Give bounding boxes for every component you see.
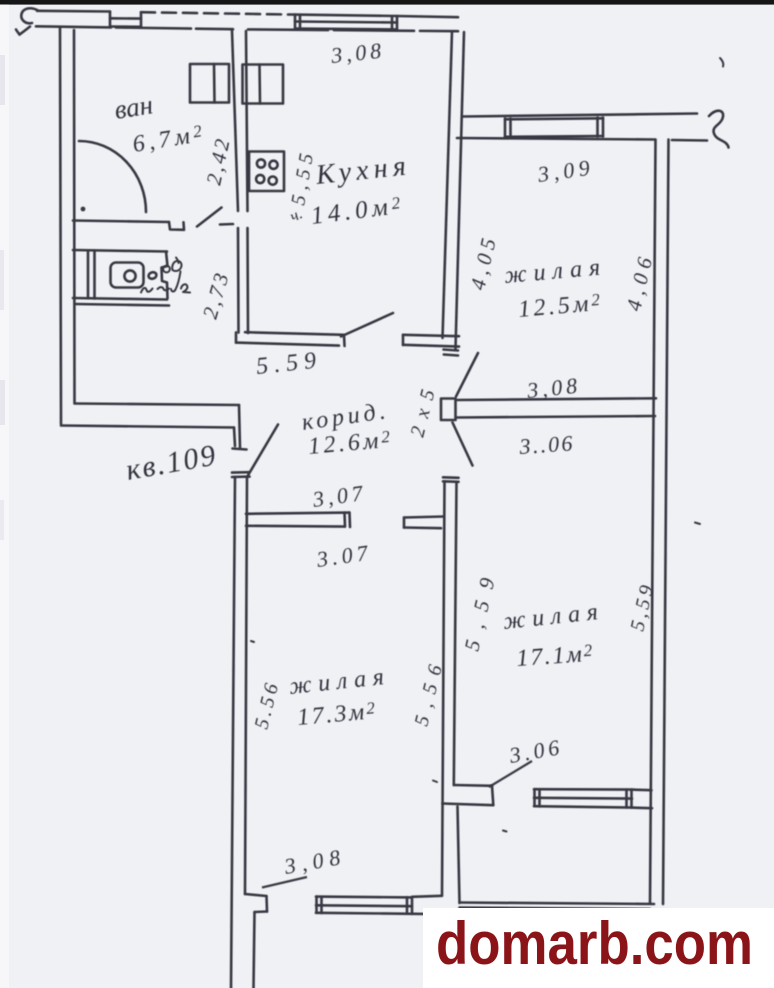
svg-text:3,08: 3,08 <box>525 373 578 403</box>
svg-text:domarb.com: domarb.com <box>436 910 753 977</box>
svg-text:ван: ван <box>112 89 155 125</box>
svg-text:3,08: 3,08 <box>329 38 382 68</box>
